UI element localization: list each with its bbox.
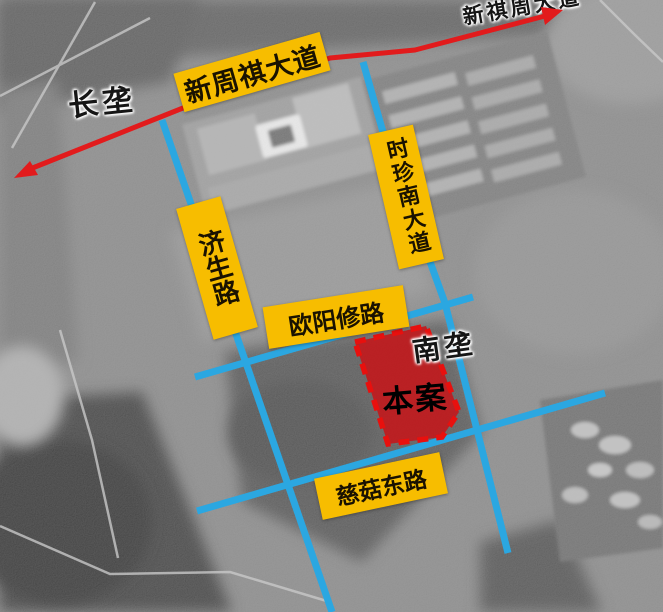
arterial-arrow-line: [30, 16, 545, 169]
arrow-head-right-icon: [541, 7, 563, 25]
arrow-head-left-icon: [14, 161, 38, 178]
satellite-location-map: 长垄 南垄 新祺周大道 本案 新周祺大道 济生路 时珍南大道 欧阳修路 慈菇东路: [0, 0, 663, 612]
